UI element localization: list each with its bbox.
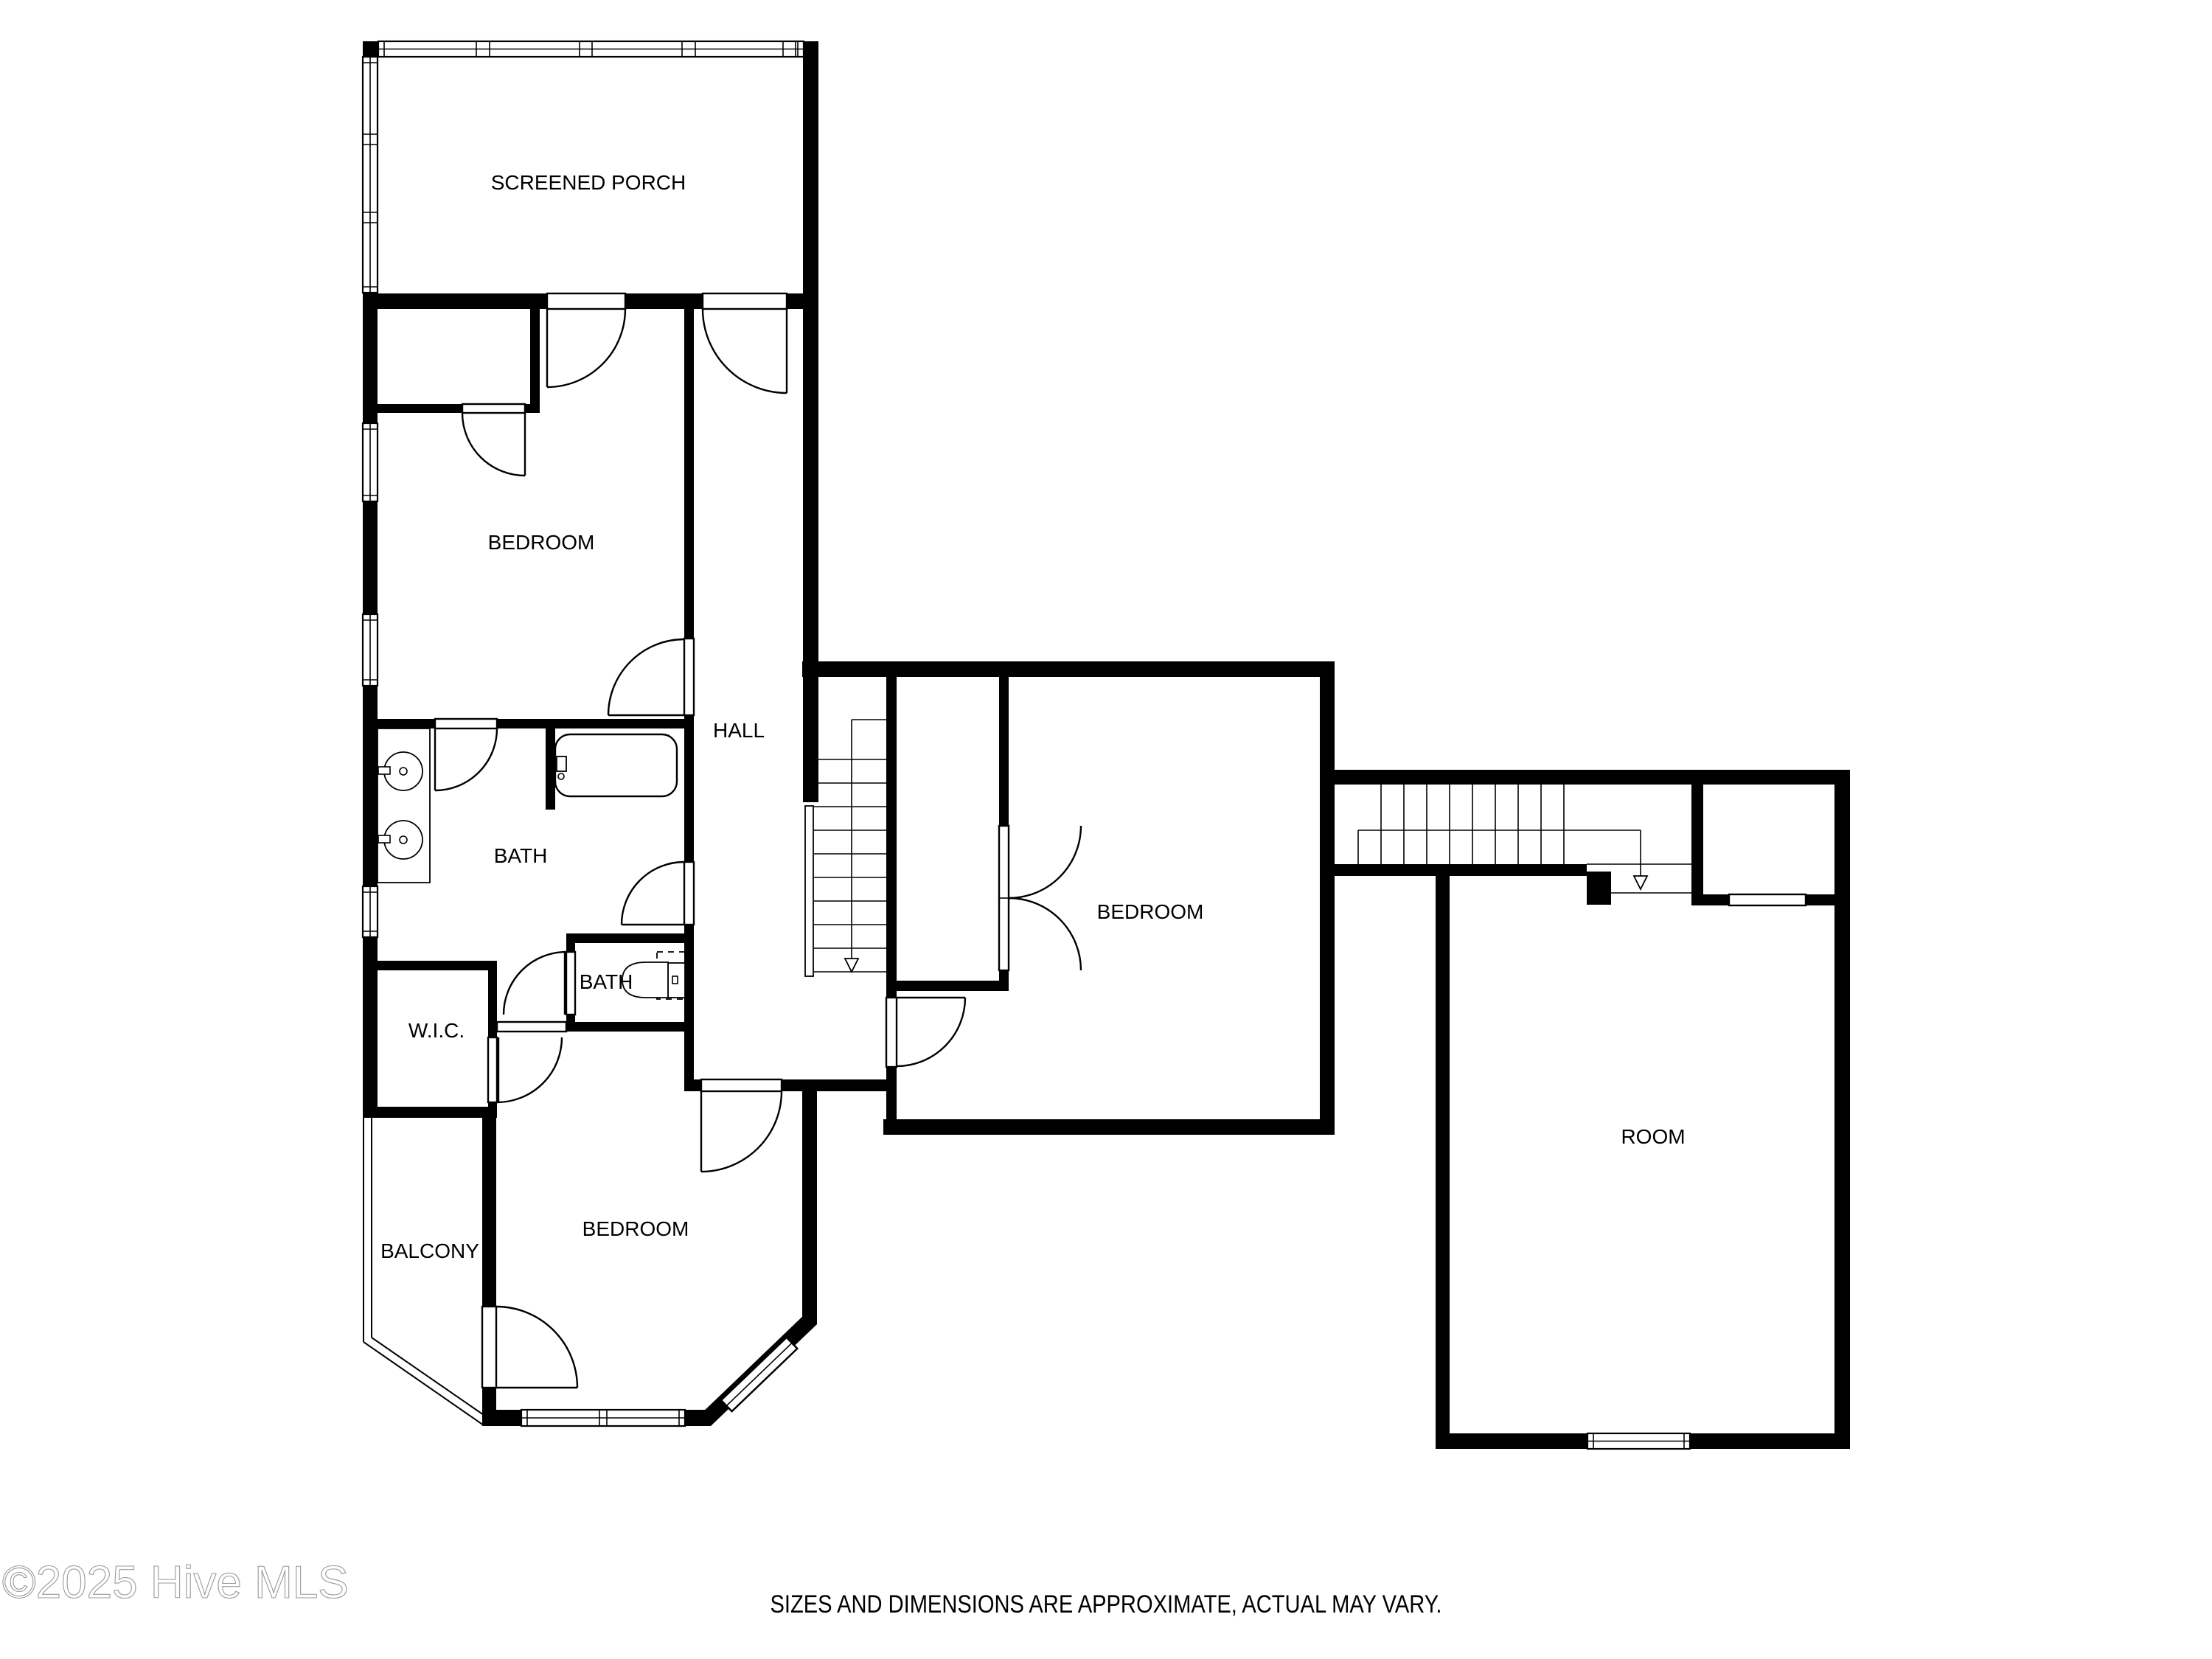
svg-text:BEDROOM: BEDROOM [488, 531, 595, 554]
svg-text:BATH: BATH [494, 844, 548, 867]
svg-text:W.I.C.: W.I.C. [408, 1019, 465, 1042]
svg-text:BATH: BATH [580, 970, 633, 993]
svg-text:SIZES AND DIMENSIONS ARE APPRO: SIZES AND DIMENSIONS ARE APPROXIMATE, AC… [771, 1590, 1442, 1618]
svg-text:HALL: HALL [713, 719, 765, 742]
svg-text:BALCONY: BALCONY [380, 1239, 479, 1262]
svg-text:ROOM: ROOM [1621, 1125, 1685, 1148]
svg-text:BEDROOM: BEDROOM [582, 1217, 689, 1240]
svg-text:©2025 Hive MLS: ©2025 Hive MLS [2, 1557, 349, 1608]
svg-text:SCREENED PORCH: SCREENED PORCH [491, 171, 686, 194]
svg-text:BEDROOM: BEDROOM [1097, 900, 1204, 923]
